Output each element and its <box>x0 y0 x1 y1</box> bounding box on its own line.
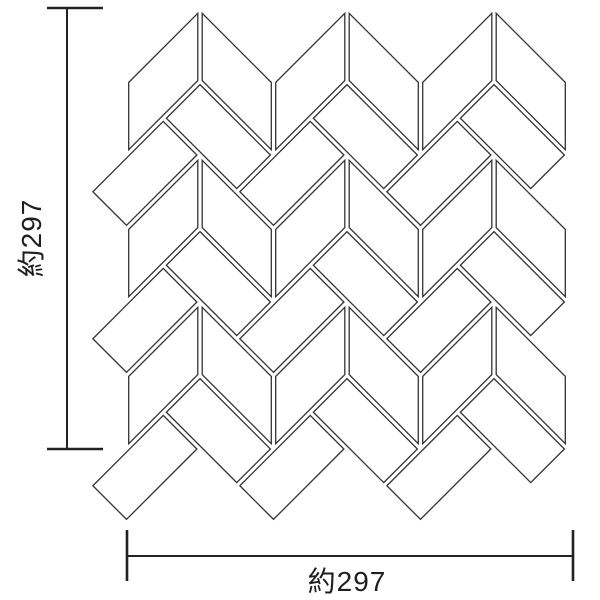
vertical-dimension-label: 約297 <box>16 199 47 278</box>
mosaic-tile-rect-up <box>93 415 197 519</box>
horizontal-dimension: 約297 <box>127 530 573 597</box>
mosaic-tile-rect-up <box>387 415 491 519</box>
diagram-canvas: 約297 約297 <box>0 0 600 600</box>
vertical-dimension: 約297 <box>16 8 103 449</box>
tile-pattern <box>93 13 565 519</box>
mosaic-tile-rect-up <box>240 415 344 519</box>
horizontal-dimension-label: 約297 <box>308 566 387 597</box>
mosaic-dimension-diagram: 約297 約297 <box>0 0 600 600</box>
